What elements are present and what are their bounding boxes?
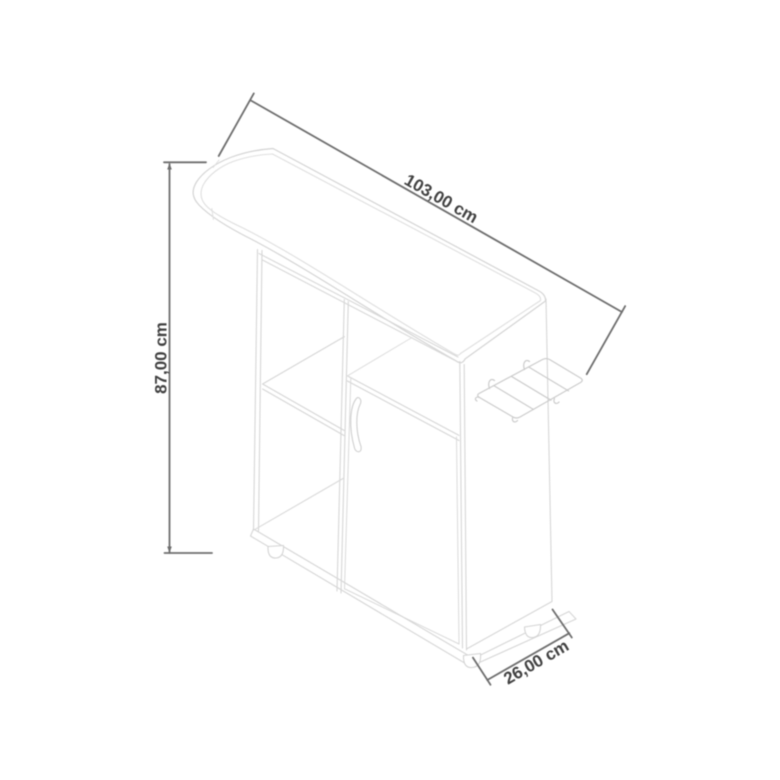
svg-text:103,00 cm: 103,00 cm bbox=[401, 170, 481, 227]
svg-text:87,00 cm: 87,00 cm bbox=[152, 322, 171, 394]
svg-text:26,00 cm: 26,00 cm bbox=[500, 636, 572, 688]
